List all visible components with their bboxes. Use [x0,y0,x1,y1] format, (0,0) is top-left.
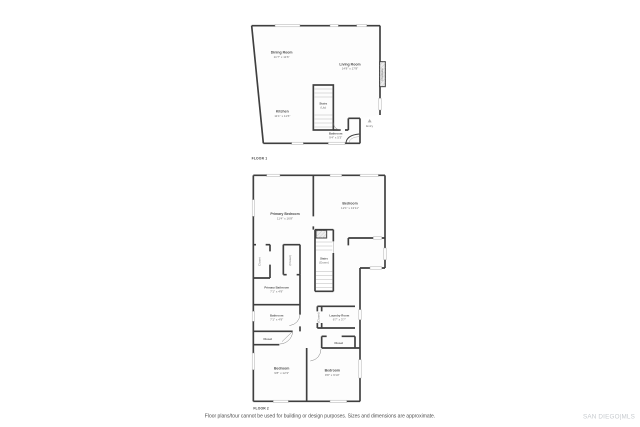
entry-label: Entry [366,124,374,128]
kitchen-label: Kitchen [276,110,289,114]
floor2-plan: Stairs (Down) Primary Bedroom 11'4" x 16… [245,168,395,413]
closet-left-label: Closet [257,257,261,266]
entry-marker: Entry [366,119,374,128]
dining-room-dims: 11'7" x 11'6" [274,55,290,59]
footer: Floor plans/tour cannot be used for buil… [0,404,640,427]
entry-arrow-icon [368,119,372,122]
primary-bathroom-label: Primary Bathroom [264,285,289,289]
disclaimer-text: Floor plans/tour cannot be used for buil… [205,413,435,419]
closet-mid-label: (Closet) [288,255,292,266]
stairs-direction: (Up) [320,105,326,109]
closet-laundry-label: (Closet) [316,312,320,323]
living-room-dims: 14'8" x 17'8" [342,67,358,71]
bathroom-dims: 7'1" x 4'9" [270,317,283,321]
bathroom-label: Bathroom [270,313,284,317]
closet-hall-label: Closet [263,337,272,341]
floor1-title: FLOOR 1 [252,156,268,160]
bedroom-bottom-right-dims: 9'8" x 9'10" [325,373,340,377]
stairs-label: Stairs [319,101,327,105]
fireplace: Fireplace [380,62,386,87]
sandiego-mls-watermark: SAN DIEGO|MLS [583,414,635,421]
linen-closet-hatch [316,230,327,238]
bathroom-dims: 9'4" x 5'3" [329,135,342,139]
floorplan-page: Fireplace Stairs (Up) E [0,0,640,427]
bedroom-bottom-right-label: Bedroom [325,368,340,372]
floor1-plan: Fireplace Stairs (Up) E [245,15,390,163]
bedroom-top-right-dims: 12'1" x 13'11" [341,206,359,210]
primary-bedroom-dims: 11'4" x 16'8" [277,217,293,221]
closet-below-laundry-label: Closet [334,341,343,345]
bedroom-top-right-label: Bedroom [342,201,357,205]
stairs-label: Stairs [320,256,328,260]
laundry-dims: 6'7" x 3'7" [333,318,346,322]
primary-bedroom-label: Primary Bedroom [270,212,299,216]
floor2-stairs: Stairs (Down) [315,230,333,292]
dining-room-label: Dining Room [271,51,293,55]
laundry-label: Laundry Room [329,314,349,318]
fireplace-label: Fireplace [380,68,384,81]
stairs-direction: (Down) [319,261,329,265]
living-room-label: Living Room [339,62,360,66]
primary-bathroom-dims: 7'1" x 4'9" [270,289,283,293]
bedroom-bottom-left-dims: 9'8" x 12'3" [274,371,289,375]
kitchen-dims: 11'1" x 11'6" [274,114,290,118]
bedroom-bottom-left-label: Bedroom [274,366,289,370]
